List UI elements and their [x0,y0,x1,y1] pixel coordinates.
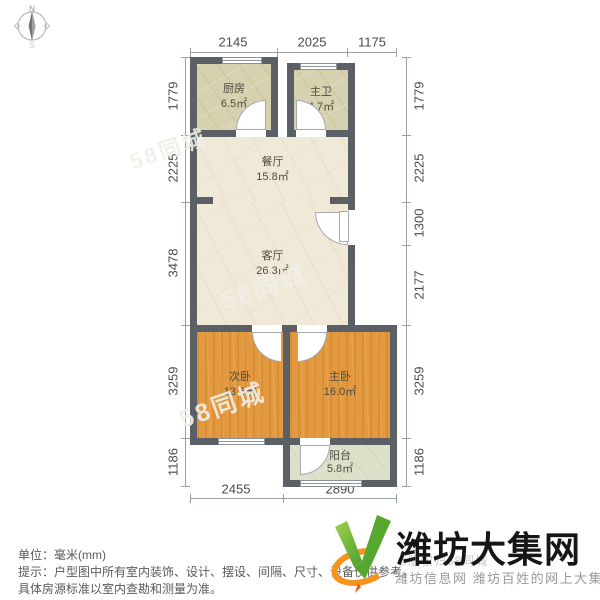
dimension-line-bottom [190,498,397,499]
room-dining-name: 餐厅 [262,155,284,170]
dimension-label: 3259 [412,367,427,396]
window-bedroom2 [218,438,265,445]
room-kitchen-name: 厨房 [223,82,245,97]
room-bedroom1-name: 主卧 [329,370,351,385]
wall-stub [197,197,213,204]
dimension-label: 1186 [412,448,427,476]
room-balcony-area: 5.8㎡ [327,463,353,476]
floorplan-page: N S 厨房 6.5㎡ 主卫 4.7㎡ 餐厅 15.8㎡ 客厅 26.3㎡ 次卧… [0,0,600,600]
dimension-label: 2145 [219,35,248,50]
wall-segment [190,325,397,332]
wall-segment [283,325,290,487]
compass-icon: N S [6,2,58,50]
room-bedroom1-area: 16.0㎡ [324,385,356,400]
dimension-label: 2177 [412,271,427,300]
dimension-label: 3259 [166,367,181,396]
site-logo-title: 潍坊大集网 [396,521,581,573]
wall-stub [330,197,348,204]
dimension-line-right [406,57,407,487]
dimension-line-top [190,52,397,53]
wall-segment [287,63,294,137]
dimension-label: 2225 [412,154,427,183]
site-logo-icon [331,511,397,595]
window-balcony [300,480,362,487]
dimension-label: 2025 [298,35,327,50]
door-opening [296,130,326,137]
dimension-label: 3478 [166,249,181,278]
door-opening [252,325,282,332]
window-bath [300,63,337,70]
wall-segment [390,325,397,487]
door-opening [300,438,330,445]
dimension-label: 2455 [222,482,251,497]
wall-segment [190,57,197,445]
room-bath-name: 主卫 [310,85,332,100]
window-kitchen [222,57,262,64]
door-opening [236,130,266,137]
site-logo-subtitle: 潍坊信息网 潍坊百姓的网上大集 [395,568,600,587]
dimension-label: 1779 [412,82,427,111]
wall-segment [348,245,355,325]
compass-north-label: N [29,5,35,14]
room-balcony-name: 阳台 [329,450,351,463]
dimension-label: 1300 [412,209,427,238]
door-opening [297,325,327,332]
dimension-label: 1175 [358,35,386,50]
room-dining-area: 15.8㎡ [256,170,288,185]
dimension-label: 1779 [166,82,181,111]
wall-segment [271,57,278,137]
room-dining: 餐厅 15.8㎡ [197,137,348,202]
compass-south-label: S [29,41,34,50]
dimension-label: 1186 [166,448,181,476]
door-leaf-entrance [339,211,349,242]
